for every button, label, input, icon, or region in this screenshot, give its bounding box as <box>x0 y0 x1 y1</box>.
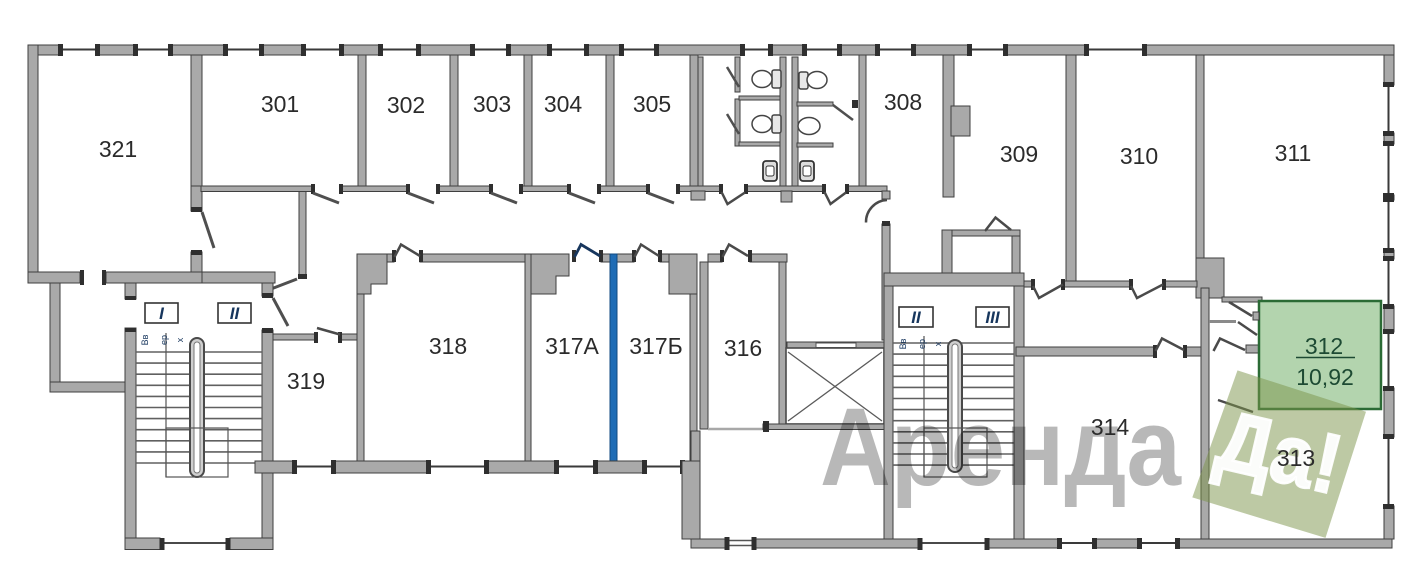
svg-text:х: х <box>933 341 943 346</box>
svg-text:308: 308 <box>884 89 922 115</box>
svg-text:319: 319 <box>287 368 325 394</box>
svg-text:II: II <box>911 308 922 327</box>
svg-text:III: III <box>985 308 1000 327</box>
svg-text:Вв: Вв <box>140 334 150 345</box>
svg-text:304: 304 <box>544 91 583 117</box>
svg-text:Вв: Вв <box>898 338 908 349</box>
svg-text:301: 301 <box>261 91 299 117</box>
svg-text:317Б: 317Б <box>629 333 682 359</box>
svg-text:318: 318 <box>429 333 467 359</box>
svg-text:303: 303 <box>473 91 511 117</box>
svg-text:316: 316 <box>724 335 762 361</box>
svg-text:312: 312 <box>1305 333 1343 359</box>
svg-text:305: 305 <box>633 91 671 117</box>
svg-text:х: х <box>175 337 185 342</box>
svg-text:302: 302 <box>387 92 425 118</box>
svg-text:10,92: 10,92 <box>1296 364 1354 390</box>
svg-text:311: 311 <box>1275 140 1312 166</box>
svg-text:321: 321 <box>99 136 137 162</box>
svg-text:ер: ер <box>917 339 927 349</box>
svg-text:ер: ер <box>159 335 169 345</box>
svg-text:309: 309 <box>1000 141 1038 167</box>
svg-text:313: 313 <box>1277 445 1315 471</box>
svg-text:Аренда: Аренда <box>820 386 1182 509</box>
svg-text:310: 310 <box>1120 143 1158 169</box>
svg-text:II: II <box>230 304 241 323</box>
svg-text:314: 314 <box>1091 414 1130 440</box>
svg-text:317А: 317А <box>545 333 599 359</box>
